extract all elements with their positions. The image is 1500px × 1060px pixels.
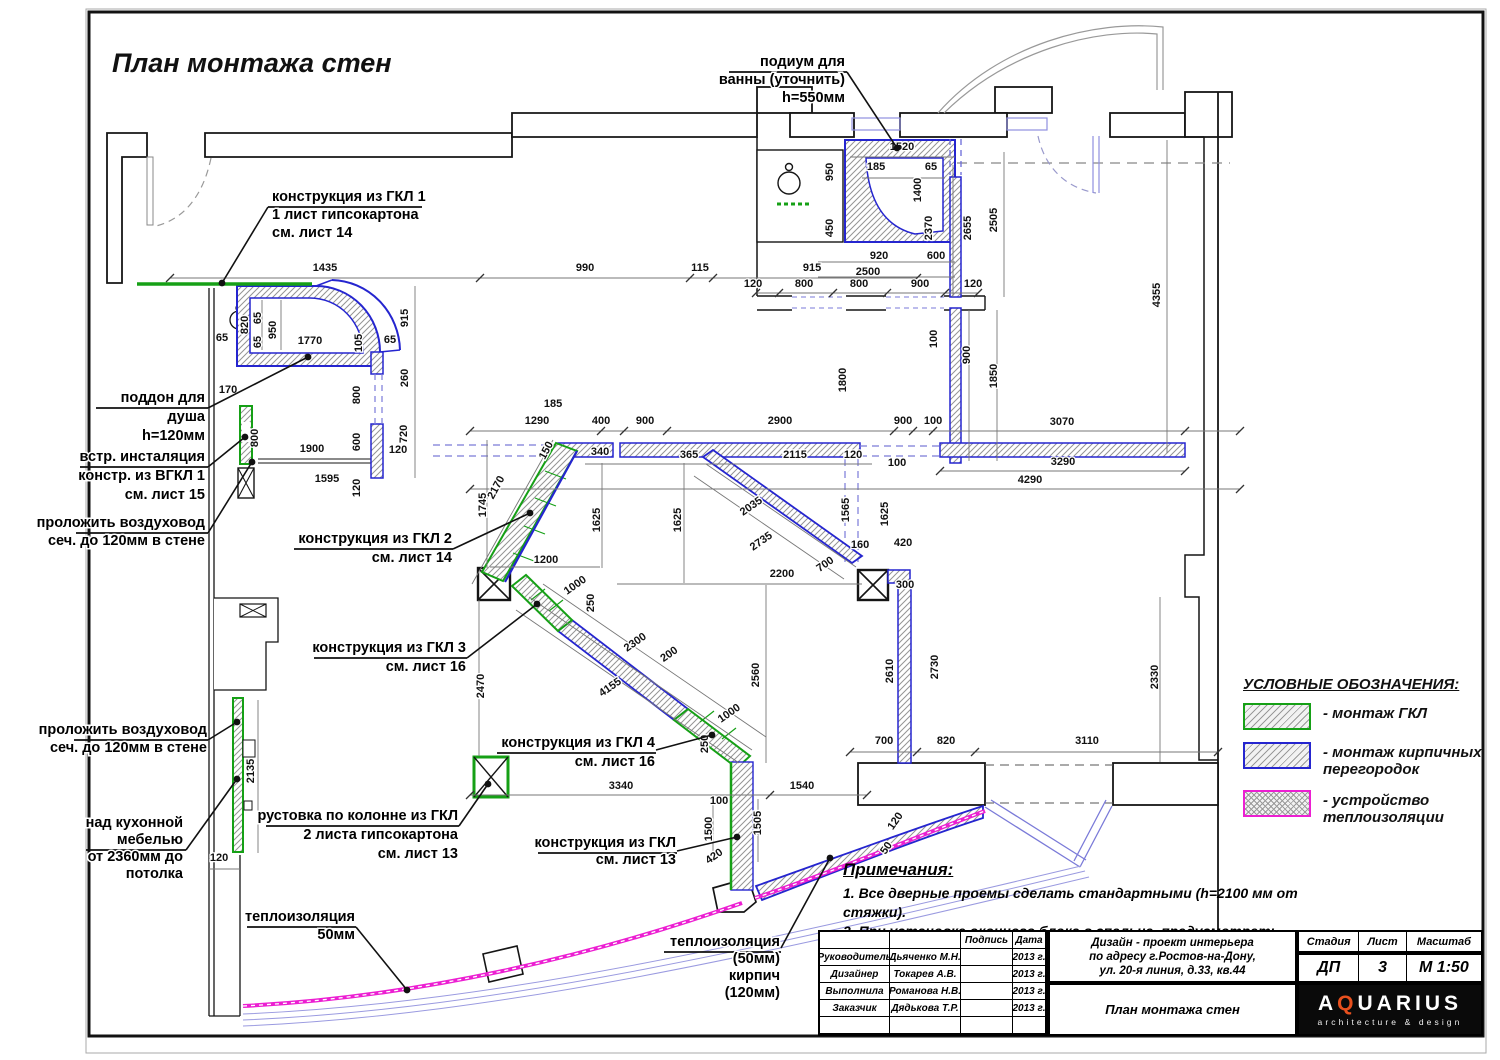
dimension-label: 1625 bbox=[672, 508, 684, 532]
callout-text: теплоизоляция bbox=[670, 934, 780, 950]
callout-text: конструкция из ГКЛ bbox=[534, 835, 676, 851]
dimension-label: 120 bbox=[744, 278, 762, 290]
logo-q-accent: Q bbox=[1337, 992, 1357, 1015]
titleblock-project: Дизайн - проект интерьерапо адресу г.Рос… bbox=[1048, 930, 1297, 983]
dimension-label: 2900 bbox=[768, 415, 792, 427]
dimension-label: 600 bbox=[927, 250, 945, 262]
callout-dot bbox=[734, 834, 741, 841]
legend-item: - монтаж ГКЛ bbox=[1243, 703, 1489, 730]
dimension-label: 1500 bbox=[703, 817, 715, 841]
callout-dot bbox=[234, 776, 241, 783]
callout-text: h=120мм bbox=[142, 428, 205, 444]
dimension-label: 120 bbox=[351, 479, 363, 497]
dimension-label: 900 bbox=[911, 278, 929, 290]
callout-text: см. лист 14 bbox=[372, 550, 452, 566]
callout-text: подиум для bbox=[760, 54, 845, 70]
legend-swatch bbox=[1243, 790, 1311, 817]
dimension-label: 2330 bbox=[1149, 665, 1161, 689]
dimension-label: 1540 bbox=[790, 780, 814, 792]
project-line: ул. 20-я линия, д.33, кв.44 bbox=[1099, 964, 1245, 978]
callout-text: рустовка по колонне из ГКЛ bbox=[257, 808, 458, 824]
callout-text: мебелью bbox=[117, 832, 183, 848]
titleblock-cell: Руководитель bbox=[820, 949, 890, 966]
dimension-label: 1900 bbox=[300, 443, 324, 455]
callout-text: конструкция из ГКЛ 4 bbox=[501, 735, 655, 751]
dimension-label: 2470 bbox=[475, 674, 487, 698]
legend-swatch bbox=[1243, 742, 1311, 769]
dimension-label: 105 bbox=[353, 334, 365, 352]
callout-dot bbox=[234, 719, 241, 726]
titleblock-cell bbox=[961, 1017, 1013, 1034]
callout-dot bbox=[404, 987, 411, 994]
titleblock-cell: 2013 г. bbox=[1013, 966, 1046, 983]
dimension-label: 260 bbox=[399, 369, 411, 387]
sheet-label: Лист bbox=[1359, 932, 1406, 951]
titleblock-cell: Заказчик bbox=[820, 1000, 890, 1017]
project-line: Дизайн - проект интерьера bbox=[1091, 936, 1254, 950]
dimension-label: 3340 bbox=[609, 780, 633, 792]
dimension-label: 120 bbox=[964, 278, 982, 290]
callout-text: см. лист 14 bbox=[272, 225, 352, 241]
legend-item: - монтаж кирпичных перегородок bbox=[1243, 742, 1489, 778]
callout-dot bbox=[527, 510, 534, 517]
callout-dot bbox=[534, 601, 541, 608]
dimension-label: 185 bbox=[544, 398, 562, 410]
dimension-label: 1770 bbox=[298, 335, 322, 347]
callout-text: проложить воздуховод bbox=[37, 515, 205, 531]
callout-text: от 2360мм до bbox=[88, 849, 184, 865]
callout-dot bbox=[242, 434, 249, 441]
scale-value: М 1:50 bbox=[1407, 955, 1481, 981]
dimension-label: 990 bbox=[576, 262, 594, 274]
dimension-label: 340 bbox=[591, 446, 609, 458]
stage-label: Стадия bbox=[1299, 932, 1359, 951]
dimension-label: 120 bbox=[844, 449, 862, 461]
dimension-label: 915 bbox=[803, 262, 821, 274]
titleblock-cell bbox=[820, 932, 890, 949]
callout-text: см. лист 16 bbox=[386, 659, 466, 675]
titleblock-cell bbox=[890, 932, 961, 949]
logo-wordmark: AQUARIUS bbox=[1318, 993, 1462, 1015]
logo-subtitle: architecture & design bbox=[1318, 1017, 1463, 1027]
dimension-label: 720 bbox=[398, 425, 410, 443]
dimension-label: 65 bbox=[925, 161, 937, 173]
dimension-label: 65 bbox=[252, 312, 264, 324]
dimension-label: 160 bbox=[851, 539, 869, 551]
dimension-label: 1625 bbox=[879, 502, 891, 526]
titleblock-cell: Дьяченко М.Н. bbox=[890, 949, 961, 966]
callout-text: над кухонной bbox=[86, 815, 183, 831]
dimension-label: 120 bbox=[389, 444, 407, 456]
titleblock-signatures-table: ПодписьДатаРуководительДьяченко М.Н.2013… bbox=[818, 930, 1048, 1036]
dimension-label: 1505 bbox=[752, 811, 764, 835]
dimension-label: 950 bbox=[267, 321, 279, 339]
callout-dot bbox=[485, 781, 492, 788]
dimension-label: 400 bbox=[592, 415, 610, 427]
dimension-label: 1850 bbox=[988, 364, 1000, 388]
dimension-label: 65 bbox=[216, 332, 228, 344]
titleblock-cell: Дата bbox=[1013, 932, 1046, 949]
callout-text: см. лист 15 bbox=[125, 487, 205, 503]
dimension-label: 3070 bbox=[1050, 416, 1074, 428]
callout-dot bbox=[249, 459, 256, 466]
titleblock-cell bbox=[961, 966, 1013, 983]
callout-text: конструкция из ГКЛ 3 bbox=[312, 640, 466, 656]
callout-text: ванны (уточнить) bbox=[719, 72, 845, 88]
dimension-label: 2115 bbox=[783, 449, 807, 461]
dimension-label: 2655 bbox=[962, 216, 974, 240]
callout-text: потолка bbox=[126, 866, 184, 882]
dimension-label: 365 bbox=[680, 449, 698, 461]
dimension-label: 820 bbox=[937, 735, 955, 747]
sheet-value: 3 bbox=[1359, 955, 1406, 981]
titleblock-cell bbox=[961, 1000, 1013, 1017]
titleblock-cell bbox=[820, 1017, 890, 1034]
legend-item: - устройство теплоизоляции bbox=[1243, 790, 1489, 826]
callout-text: конструкция из ГКЛ 1 bbox=[272, 189, 426, 205]
callout-text: 50мм bbox=[317, 927, 355, 943]
titleblock-cell: Романова Н.В. bbox=[890, 983, 961, 1000]
callout-text: кирпич bbox=[729, 968, 780, 984]
dimension-label: 1625 bbox=[591, 508, 603, 532]
dimension-label: 2610 bbox=[884, 659, 896, 683]
callout-text: см. лист 13 bbox=[596, 852, 676, 868]
scale-label: Масштаб bbox=[1407, 932, 1481, 951]
callout-dot bbox=[219, 280, 226, 287]
dimension-label: 250 bbox=[585, 594, 597, 612]
dimension-label: 185 bbox=[867, 161, 885, 173]
dimension-label: 65 bbox=[252, 336, 264, 348]
callout-text: (120мм) bbox=[725, 985, 780, 1001]
dimension-label: 4290 bbox=[1018, 474, 1042, 486]
dimension-label: 900 bbox=[894, 415, 912, 427]
dimension-label: 800 bbox=[249, 429, 261, 447]
dimension-label: 2135 bbox=[245, 759, 257, 783]
dimension-label: 120 bbox=[210, 852, 228, 864]
dimension-label: 800 bbox=[351, 386, 363, 404]
dimension-label: 100 bbox=[924, 415, 942, 427]
dimension-label: 100 bbox=[888, 457, 906, 469]
titleblock-cell: 2013 г. bbox=[1013, 949, 1046, 966]
dimension-label: 1565 bbox=[840, 498, 852, 522]
dimension-label: 1400 bbox=[912, 178, 924, 202]
dimension-label: 4355 bbox=[1151, 283, 1163, 307]
callout-text: сеч. до 120мм в стене bbox=[48, 533, 205, 549]
dimension-label: 820 bbox=[239, 316, 251, 334]
titleblock-cell: Дядькова Т.Р. bbox=[890, 1000, 961, 1017]
callout-text: проложить воздуховод bbox=[39, 722, 207, 738]
dimension-label: 800 bbox=[795, 278, 813, 290]
drawing-title: План монтажа стен bbox=[112, 48, 392, 79]
callout-text: h=550мм bbox=[782, 90, 845, 106]
dimension-label: 2500 bbox=[856, 266, 880, 278]
callout-text: сеч. до 120мм в стене bbox=[50, 740, 207, 756]
dimension-label: 915 bbox=[399, 309, 411, 327]
dimension-label: 2560 bbox=[750, 663, 762, 687]
callout-text: встр. инсталяция bbox=[80, 449, 206, 465]
titleblock-cell: Подпись bbox=[961, 932, 1013, 949]
legend-items: - монтаж ГКЛ- монтаж кирпичных перегород… bbox=[1243, 703, 1489, 826]
dimension-label: 450 bbox=[824, 219, 836, 237]
dimension-label: 900 bbox=[961, 346, 973, 364]
dimension-label: 700 bbox=[875, 735, 893, 747]
titleblock-cell: Токарев А.В. bbox=[890, 966, 961, 983]
callout-text: теплоизоляция bbox=[245, 909, 355, 925]
stage-value: ДП bbox=[1299, 955, 1359, 981]
callout-text: констр. из ВГКЛ 1 bbox=[78, 468, 205, 484]
dimension-label: 1800 bbox=[837, 368, 849, 392]
callout-dot bbox=[827, 855, 834, 862]
dimension-label: 900 bbox=[636, 415, 654, 427]
titleblock-cell bbox=[890, 1017, 961, 1034]
dimension-label: 300 bbox=[896, 579, 914, 591]
company-logo: AQUARIUS architecture & design bbox=[1297, 983, 1483, 1036]
legend-swatch bbox=[1243, 703, 1311, 730]
titleblock-cell: 2013 г. bbox=[1013, 1000, 1046, 1017]
legend-label: - устройство теплоизоляции bbox=[1323, 790, 1489, 826]
dimension-label: 950 bbox=[824, 163, 836, 181]
titleblock-doc-title: План монтажа стен bbox=[1048, 983, 1297, 1036]
dimension-label: 2730 bbox=[929, 655, 941, 679]
titleblock-cell: Выполнила bbox=[820, 983, 890, 1000]
dimension-label: 3290 bbox=[1051, 456, 1075, 468]
callout-dot bbox=[305, 354, 312, 361]
titleblock-cell: Дизайнер bbox=[820, 966, 890, 983]
dimension-label: 920 bbox=[870, 250, 888, 262]
project-line: по адресу г.Ростов-на-Дону, bbox=[1089, 950, 1256, 964]
dimension-label: 100 bbox=[710, 795, 728, 807]
note-item: 1. Все дверные проемы сделать стандартны… bbox=[843, 884, 1329, 922]
dimension-label: 100 bbox=[928, 330, 940, 348]
dimension-label: 65 bbox=[384, 334, 396, 346]
titleblock-cell bbox=[1013, 1017, 1046, 1034]
dimension-label: 2370 bbox=[923, 216, 935, 240]
dimension-label: 800 bbox=[850, 278, 868, 290]
callout-text: 1 лист гипсокартона bbox=[272, 207, 420, 223]
titleblock-cell: 2013 г. bbox=[1013, 983, 1046, 1000]
legend-title: УСЛОВНЫЕ ОБОЗНАЧЕНИЯ: bbox=[1243, 676, 1489, 693]
dimension-label: 1595 bbox=[315, 473, 339, 485]
titleblock-cell bbox=[961, 949, 1013, 966]
legend-label: - монтаж ГКЛ bbox=[1323, 703, 1427, 722]
dimension-label: 420 bbox=[894, 537, 912, 549]
dimension-label: 1745 bbox=[477, 493, 489, 517]
callout-text: см. лист 16 bbox=[575, 754, 655, 770]
callout-text: поддон для bbox=[121, 390, 205, 406]
legend-label: - монтаж кирпичных перегородок bbox=[1323, 742, 1489, 778]
dimension-label: 1200 bbox=[534, 554, 558, 566]
dimension-label: 2200 bbox=[770, 568, 794, 580]
dimension-label: 115 bbox=[691, 262, 709, 274]
callout-text: конструкция из ГКЛ 2 bbox=[298, 531, 452, 547]
dimension-label: 3110 bbox=[1075, 735, 1099, 747]
callout-text: (50мм) bbox=[733, 951, 780, 967]
drawing-sheet: 1435990115915152018565950140045023709206… bbox=[0, 0, 1500, 1060]
callout-text: душа bbox=[167, 409, 206, 425]
titleblock-stage-header: Стадия Лист Масштаб bbox=[1297, 930, 1483, 953]
notes-title: Примечания: bbox=[843, 860, 1329, 880]
dimension-label: 1290 bbox=[525, 415, 549, 427]
callout-text: 2 листа гипсокартона bbox=[303, 827, 459, 843]
dimension-label: 2505 bbox=[988, 208, 1000, 232]
titleblock-stage-values: ДП 3 М 1:50 bbox=[1297, 953, 1483, 983]
legend: УСЛОВНЫЕ ОБОЗНАЧЕНИЯ: - монтаж ГКЛ- монт… bbox=[1243, 676, 1489, 838]
dimension-label: 1435 bbox=[313, 262, 337, 274]
dimension-label: 600 bbox=[351, 433, 363, 451]
titleblock-cell bbox=[961, 983, 1013, 1000]
callout-text: см. лист 13 bbox=[378, 846, 458, 862]
callout-dot bbox=[709, 732, 716, 739]
callout-dot bbox=[894, 145, 901, 152]
